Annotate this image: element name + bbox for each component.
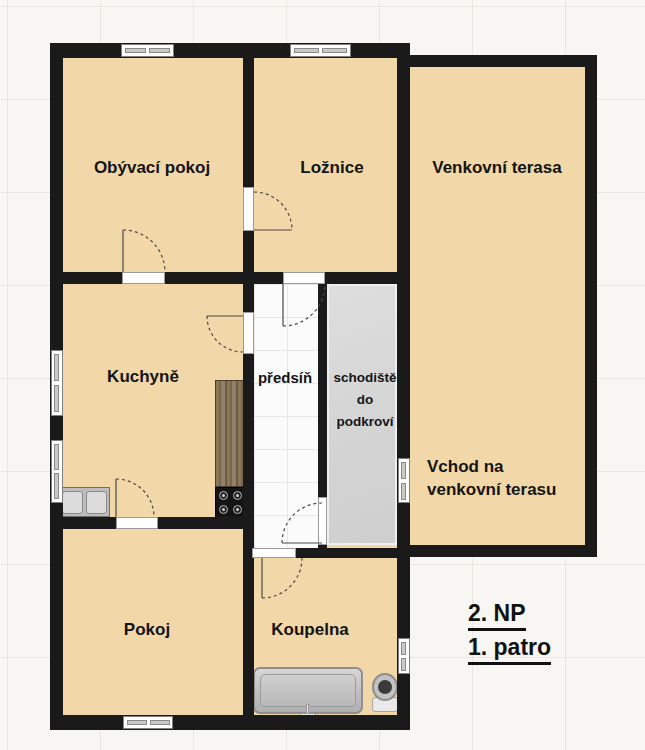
label-terrace: Venkovní terasa <box>432 158 561 178</box>
door-arc <box>262 558 302 598</box>
label-staircase: schodiště do podkroví <box>333 367 396 433</box>
label-kitchen: Kuchyně <box>107 367 179 387</box>
door-arc <box>123 230 165 272</box>
door-arc <box>116 479 154 517</box>
label-hallway: předsíň <box>258 369 312 386</box>
label-room: Pokoj <box>124 620 170 640</box>
label-living-room: Obývací pokoj <box>94 158 210 178</box>
label-bathroom: Koupelna <box>271 620 348 640</box>
door-arc <box>283 284 325 326</box>
floor-label-patro: 1. patro <box>468 634 551 665</box>
label-bedroom: Ložnice <box>300 158 363 178</box>
door-arc <box>254 192 292 230</box>
floor-plan: Obývací pokoj Ložnice Venkovní terasa Ku… <box>0 0 645 750</box>
door-arc <box>207 316 243 352</box>
door-arc <box>282 503 322 543</box>
floor-label-np: 2. NP <box>468 600 526 631</box>
label-terrace-entrance: Vchod na venkovní terasu <box>427 455 556 501</box>
